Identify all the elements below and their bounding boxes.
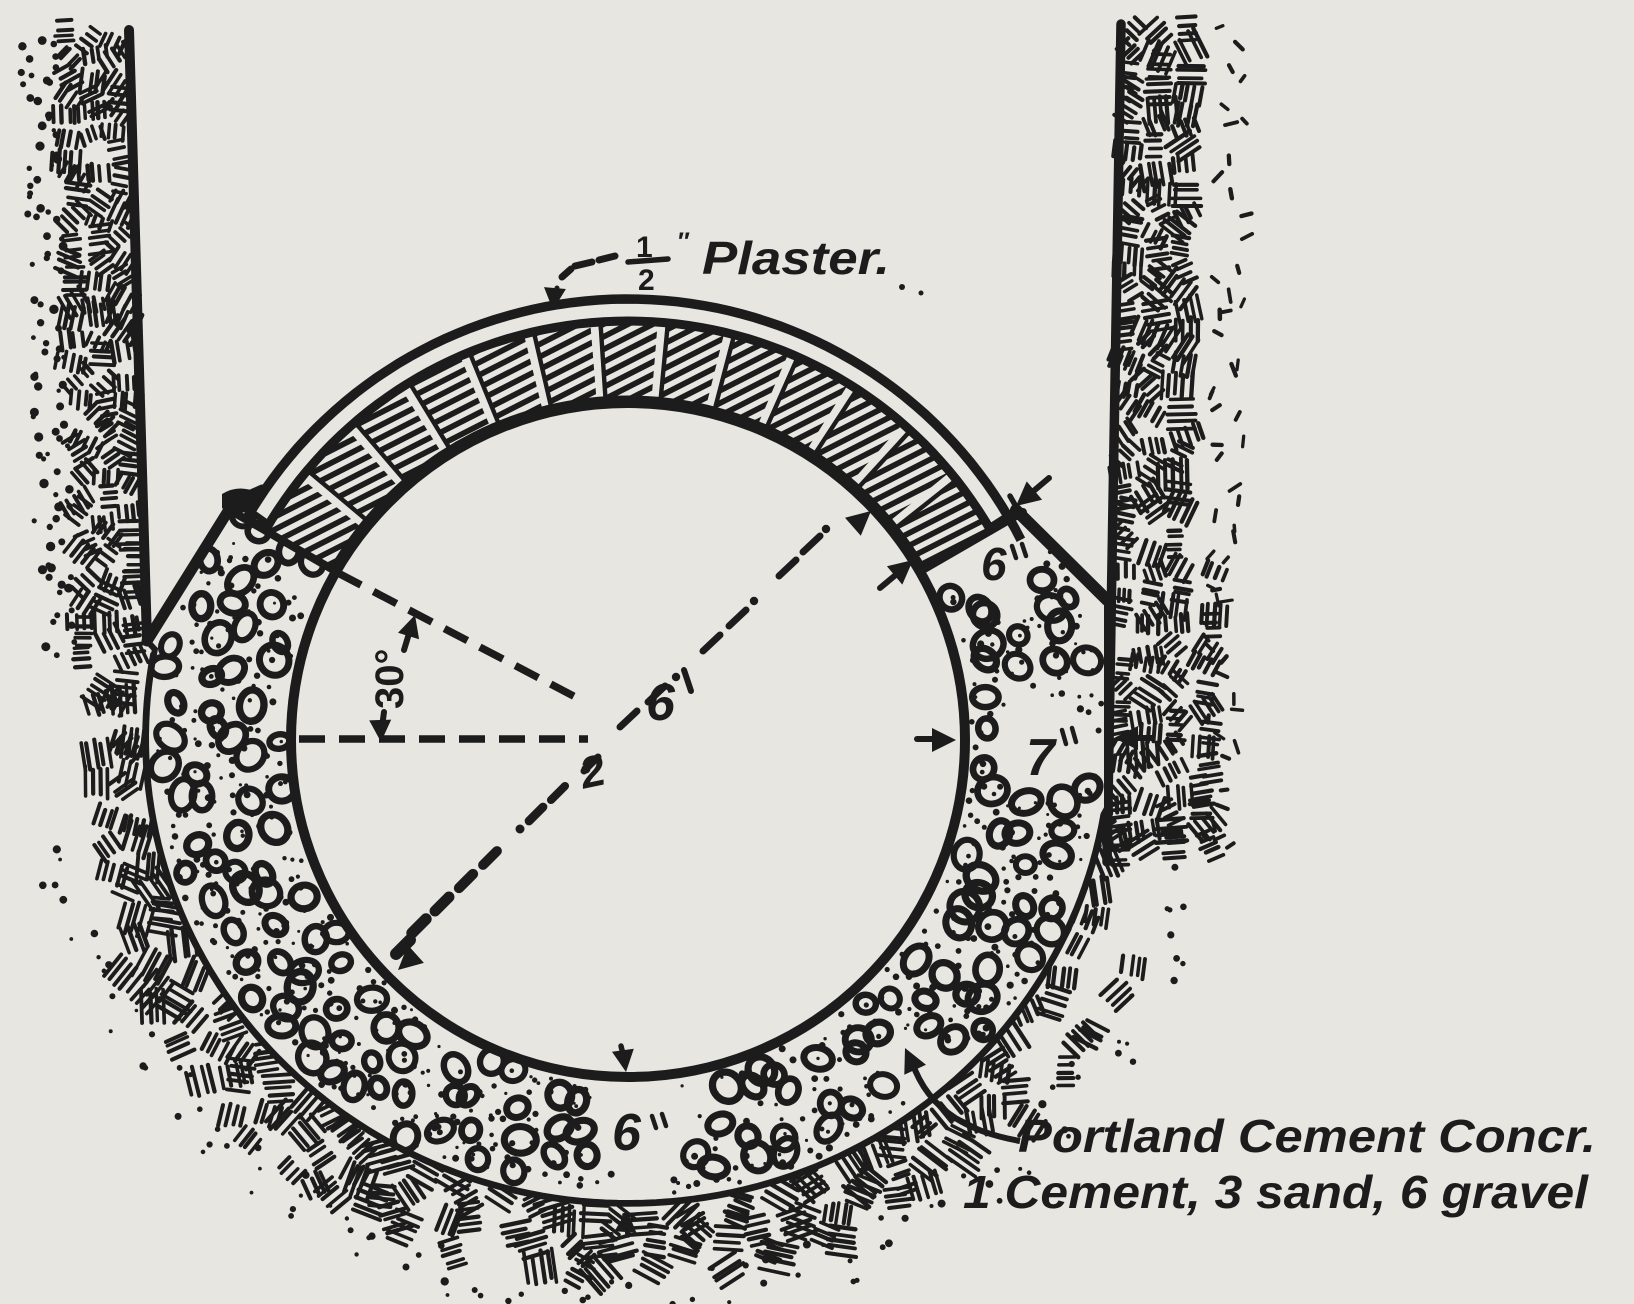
svg-text:Plaster.: Plaster. bbox=[702, 232, 890, 284]
svg-text:1 Cement, 3 sand, 6 gravel: 1 Cement, 3 sand, 6 gravel bbox=[963, 1166, 1589, 1218]
svg-text:6: 6 bbox=[612, 1104, 642, 1162]
svg-text:30°: 30° bbox=[368, 649, 412, 710]
svg-text:″: ″ bbox=[678, 228, 690, 256]
svg-text:7: 7 bbox=[1026, 729, 1057, 787]
svg-text:6: 6 bbox=[981, 538, 1007, 590]
svg-text:6: 6 bbox=[646, 674, 676, 732]
svg-text:2: 2 bbox=[638, 264, 655, 297]
svg-text:Portland Cement Concr.: Portland Cement Concr. bbox=[1018, 1110, 1596, 1162]
